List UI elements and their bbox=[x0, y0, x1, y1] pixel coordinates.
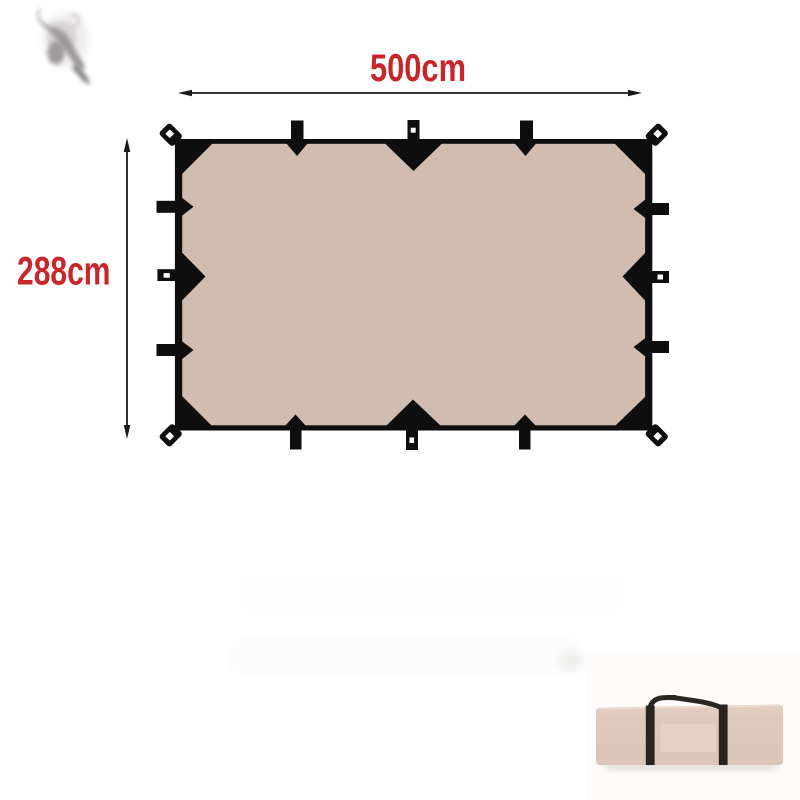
svg-text:288cm: 288cm bbox=[17, 250, 111, 294]
svg-text:500cm: 500cm bbox=[370, 47, 466, 90]
